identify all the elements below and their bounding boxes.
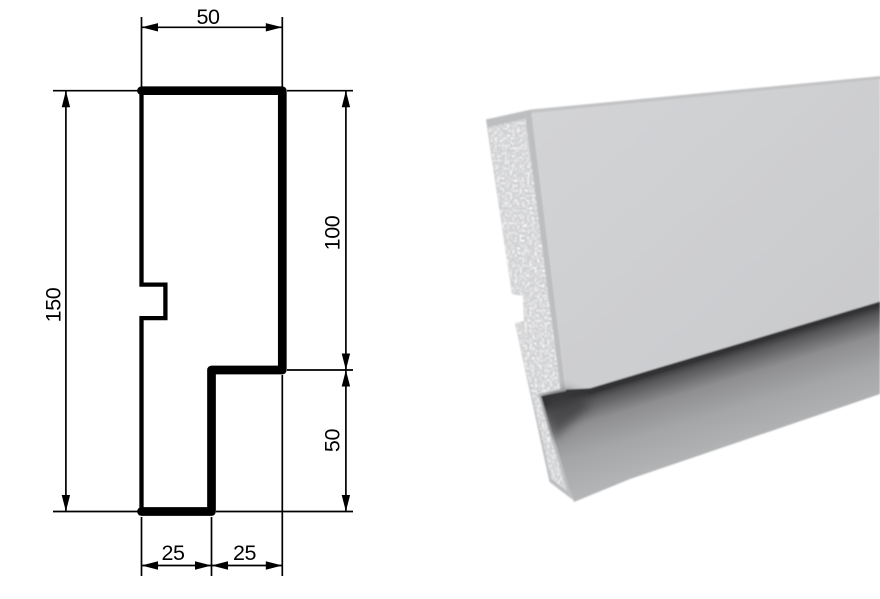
svg-text:25: 25 [161, 541, 185, 565]
svg-text:150: 150 [42, 287, 66, 322]
svg-text:50: 50 [321, 429, 345, 453]
svg-text:50: 50 [196, 5, 220, 29]
svg-text:25: 25 [233, 541, 257, 565]
svg-text:100: 100 [321, 215, 345, 250]
